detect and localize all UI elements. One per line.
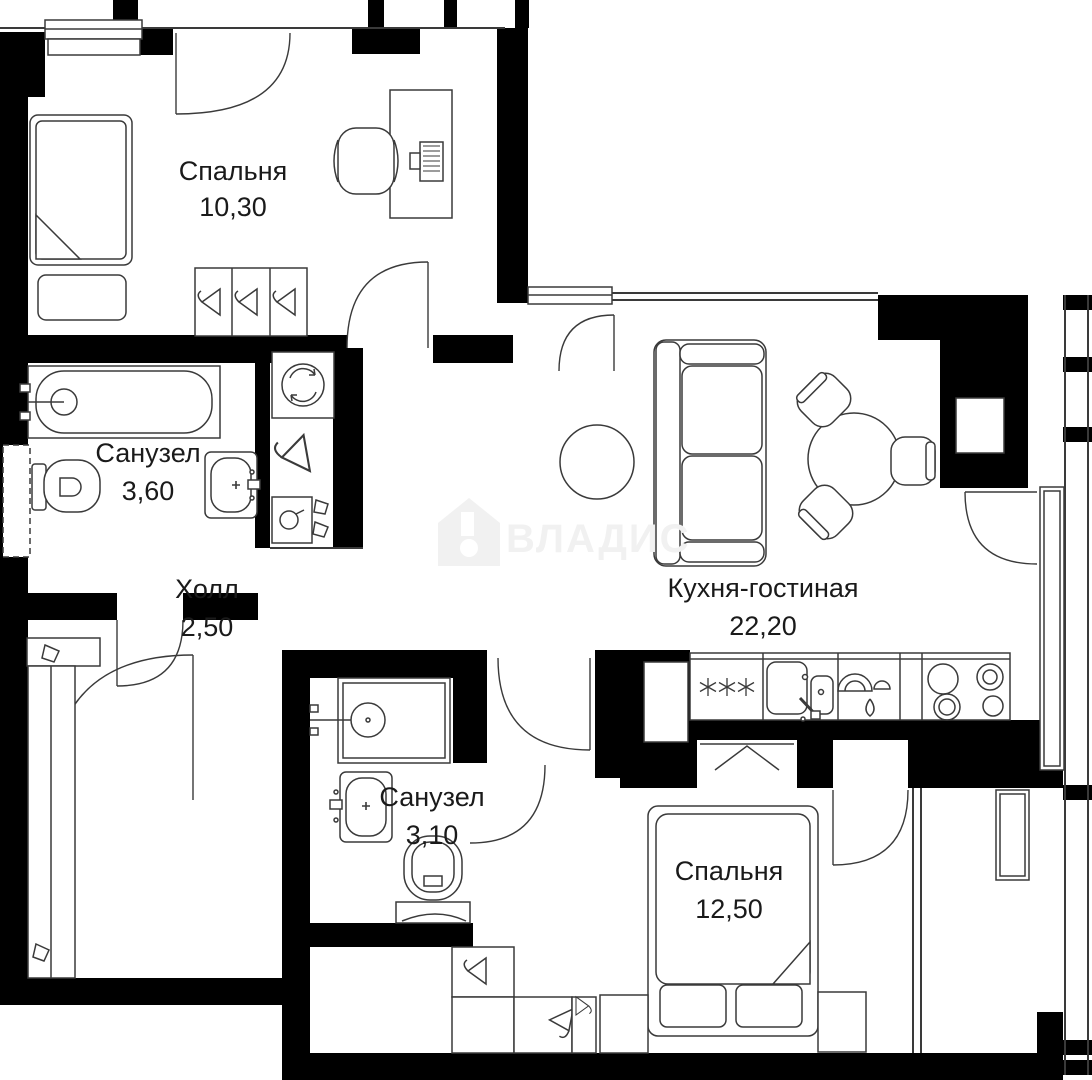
door-bathroom1 [117, 620, 183, 686]
svg-text:12,50: 12,50 [695, 894, 763, 924]
door-bedroom2 [833, 790, 908, 865]
watermark-logo-icon [438, 498, 500, 566]
closet-cabinet [272, 497, 328, 543]
door-balcony-bedroom1 [176, 33, 290, 114]
svg-text:2,50: 2,50 [181, 612, 234, 642]
nightstand [818, 992, 866, 1052]
svg-text:3,10: 3,10 [406, 820, 459, 850]
floor-plan: ВЛАДИС Спальня 10,30 Санузел 3,60 Холл 2… [0, 0, 1092, 1080]
wardrobe-bedroom1 [195, 268, 307, 336]
room-label-bathroom1: Санузел 3,60 [95, 438, 200, 506]
door-bathroom2 [498, 658, 590, 750]
watermark-text: ВЛАДИС [506, 517, 690, 561]
room-label-bedroom1: Спальня 10,30 [179, 156, 288, 222]
svg-text:Санузел: Санузел [95, 438, 200, 468]
fridge-icon [700, 678, 754, 696]
svg-text:Кухня-гостиная: Кухня-гостиная [667, 573, 858, 603]
svg-text:Спальня: Спальня [179, 156, 288, 186]
svg-text:Санузел: Санузел [379, 782, 484, 812]
watermark: ВЛАДИС [438, 498, 690, 566]
fold-table [700, 744, 794, 770]
svg-text:10,30: 10,30 [199, 192, 267, 222]
door-bedroom1 [347, 262, 428, 348]
coffee-table [560, 425, 634, 499]
shower [310, 678, 450, 763]
dining-set [791, 367, 935, 544]
shaft [3, 445, 30, 557]
bed-drawer [38, 275, 126, 320]
bed-single [30, 115, 132, 320]
nightstand [600, 995, 648, 1053]
bed-bench [660, 985, 726, 1027]
svg-text:22,20: 22,20 [729, 611, 797, 641]
chair [891, 437, 935, 485]
chair [791, 367, 856, 432]
boot-icon [313, 522, 328, 537]
room-label-kitchen-living: Кухня-гостиная 22,20 [667, 573, 858, 641]
svg-text:Холл: Холл [175, 574, 239, 604]
boot-icon [314, 500, 328, 514]
bed-bench [736, 985, 802, 1027]
room-label-bathroom2: Санузел 3,10 [379, 782, 484, 850]
washing-machine [272, 352, 334, 418]
sink-bathroom1 [205, 452, 260, 518]
door-balcony-kitchen-right [965, 492, 1037, 564]
desk [390, 90, 452, 218]
toilet-shelf [396, 902, 470, 923]
toilet-1 [32, 460, 100, 512]
wardrobe-bedroom2 [452, 947, 596, 1053]
bathtub [20, 366, 220, 438]
office-chair [334, 128, 398, 194]
kitchen-counter [690, 653, 1010, 721]
svg-text:3,60: 3,60 [122, 476, 175, 506]
svg-text:Спальня: Спальня [675, 856, 784, 886]
window-bay [48, 39, 140, 55]
closet-hanger [274, 435, 310, 476]
chair [793, 479, 858, 544]
door-balcony-kitchen-top [559, 315, 614, 371]
